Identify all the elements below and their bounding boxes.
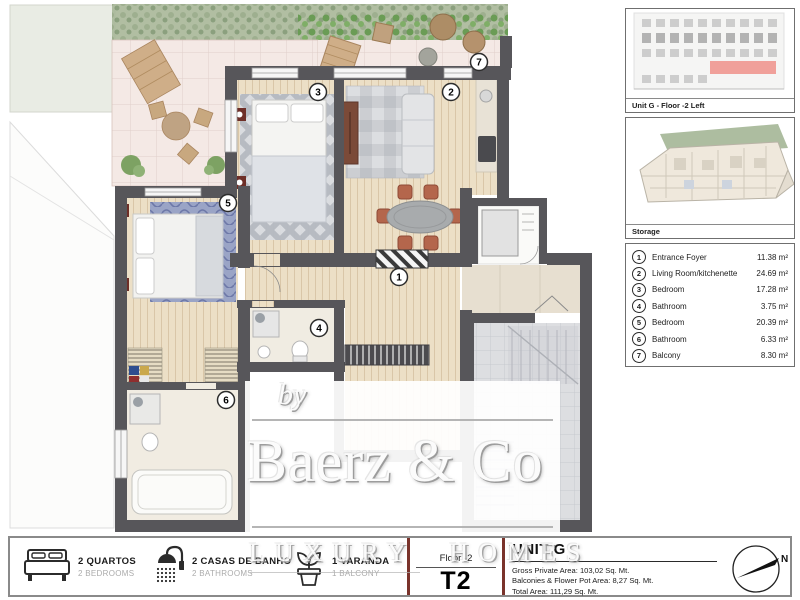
legend-number-badge: 2 xyxy=(632,267,646,281)
room-marker-label: 4 xyxy=(316,324,322,335)
legend-room-area: 11.38 m² xyxy=(744,253,788,262)
legend-room-name: Bedroom xyxy=(652,318,744,327)
floor-grille xyxy=(345,345,429,365)
balconies-area: Balconies & Flower Pot Area: 8,27 Sq. Mt… xyxy=(512,576,724,586)
compass-icon: N xyxy=(728,540,790,596)
legend-number-badge: 1 xyxy=(632,250,646,264)
room-marker-label: 6 xyxy=(223,396,229,407)
legend-row: 4 Bathroom 3.75 m² xyxy=(632,298,788,314)
watermark-line-top xyxy=(252,419,553,421)
feature-bedrooms: 2 QUARTOS 2 BEDROOMS xyxy=(24,538,136,595)
legend-room-name: Entrance Foyer xyxy=(652,253,744,262)
legend-row: 2 Living Room/kitchenette 24.69 m² xyxy=(632,265,788,281)
room-marker: 1 xyxy=(391,269,408,286)
tech-room xyxy=(478,206,539,264)
room-bathroom-6 xyxy=(127,390,238,520)
storage-plan-card: Storage xyxy=(625,117,795,239)
floor-plan-page: 1 2 3 4 5 6 7 by Baerz & Co LUXURY HOMES… xyxy=(0,0,800,600)
feature-label-pt: 2 QUARTOS xyxy=(78,556,136,567)
storage-corridor xyxy=(462,265,580,313)
watermark-brand: Baerz & Co xyxy=(247,427,544,496)
feature-label-en: 1 BALCONY xyxy=(332,569,389,578)
room-bedroom-5 xyxy=(116,202,236,302)
room-marker: 2 xyxy=(443,84,460,101)
legend-room-name: Bathroom xyxy=(652,335,744,344)
legend-number-badge: 6 xyxy=(632,332,646,346)
room-marker: 7 xyxy=(471,54,488,71)
room-marker: 4 xyxy=(311,320,328,337)
compass-north-label: N xyxy=(781,554,788,565)
legend-room-area: 3.75 m² xyxy=(744,302,788,311)
room-marker: 6 xyxy=(218,392,235,409)
room-marker-label: 7 xyxy=(476,58,482,69)
building-elevation-diagram xyxy=(626,9,794,95)
entrance-threshold xyxy=(376,250,428,268)
legend-number-badge: 5 xyxy=(632,316,646,330)
typology-label: T2 xyxy=(410,569,502,594)
unit-locator-caption: Unit G - Floor -2 Left xyxy=(626,98,794,112)
room-marker-label: 2 xyxy=(448,88,454,99)
feature-label-en: 2 BEDROOMS xyxy=(78,569,136,578)
legend-row: 6 Bathroom 6.33 m² xyxy=(632,331,788,347)
legend-number-badge: 7 xyxy=(632,349,646,363)
room-marker-label: 1 xyxy=(396,273,402,284)
legend-number-badge: 4 xyxy=(632,299,646,313)
total-area: Total Area: 111,29 Sq. Mt. xyxy=(512,587,724,597)
room-marker: 5 xyxy=(220,195,237,212)
bed-icon xyxy=(24,548,70,586)
shower-icon xyxy=(150,545,184,589)
room-marker: 3 xyxy=(310,84,327,101)
legend-room-name: Bedroom xyxy=(652,285,744,294)
legend-room-name: Bathroom xyxy=(652,302,744,311)
legend-row: 7 Balcony 8.30 m² xyxy=(632,347,788,363)
legend-number-badge: 3 xyxy=(632,283,646,297)
watermark-by: by xyxy=(278,378,306,412)
legend-room-area: 8.30 m² xyxy=(744,351,788,360)
highlighted-unit xyxy=(710,61,776,74)
watermark-underline xyxy=(250,572,420,573)
watermark-tagline: LUXURY HOMES xyxy=(249,538,590,568)
legend-row: 1 Entrance Foyer 11.38 m² xyxy=(632,249,788,265)
legend-room-area: 20.39 m² xyxy=(744,318,788,327)
legend-room-name: Living Room/kitchenette xyxy=(652,269,744,278)
legend-room-area: 6.33 m² xyxy=(744,335,788,344)
legend-row: 5 Bedroom 20.39 m² xyxy=(632,315,788,331)
room-marker-label: 3 xyxy=(315,88,321,99)
legend-room-name: Balcony xyxy=(652,351,744,360)
feature-label-en: 2 BATHROOMS xyxy=(192,569,291,578)
storage-caption: Storage xyxy=(626,224,794,238)
unit-locator-card: Unit G - Floor -2 Left xyxy=(625,8,795,113)
legend-row: 3 Bedroom 17.28 m² xyxy=(632,282,788,298)
legend-room-area: 17.28 m² xyxy=(744,285,788,294)
legend-room-area: 24.69 m² xyxy=(744,269,788,278)
room-marker-label: 5 xyxy=(225,199,231,210)
storage-floor-plan-thumbnail xyxy=(626,118,794,222)
room-legend-card: 1 Entrance Foyer 11.38 m² 2 Living Room/… xyxy=(625,243,795,367)
site-context xyxy=(10,5,115,528)
watermark-line-bottom xyxy=(252,526,553,528)
